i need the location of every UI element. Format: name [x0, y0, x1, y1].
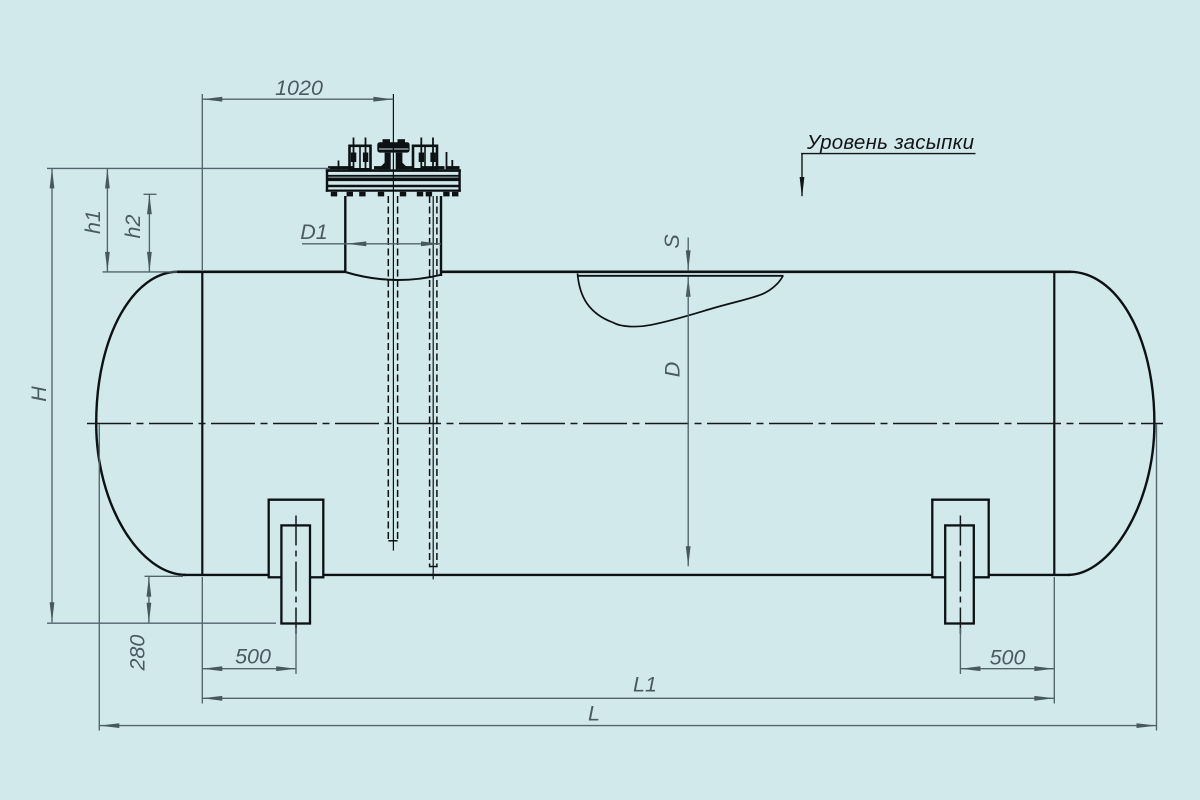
- svg-text:H: H: [27, 386, 51, 402]
- svg-text:280: 280: [126, 635, 150, 672]
- svg-text:L1: L1: [633, 673, 657, 697]
- svg-text:D: D: [661, 362, 685, 378]
- svg-text:h1: h1: [81, 210, 105, 234]
- svg-text:1020: 1020: [275, 76, 323, 100]
- svg-text:500: 500: [990, 646, 1026, 670]
- svg-text:500: 500: [235, 645, 271, 669]
- svg-text:Уровень засыпки: Уровень засыпки: [806, 131, 974, 154]
- svg-text:D1: D1: [300, 220, 327, 244]
- svg-text:S: S: [660, 234, 684, 249]
- svg-text:h2: h2: [121, 215, 145, 239]
- svg-text:L: L: [588, 702, 600, 726]
